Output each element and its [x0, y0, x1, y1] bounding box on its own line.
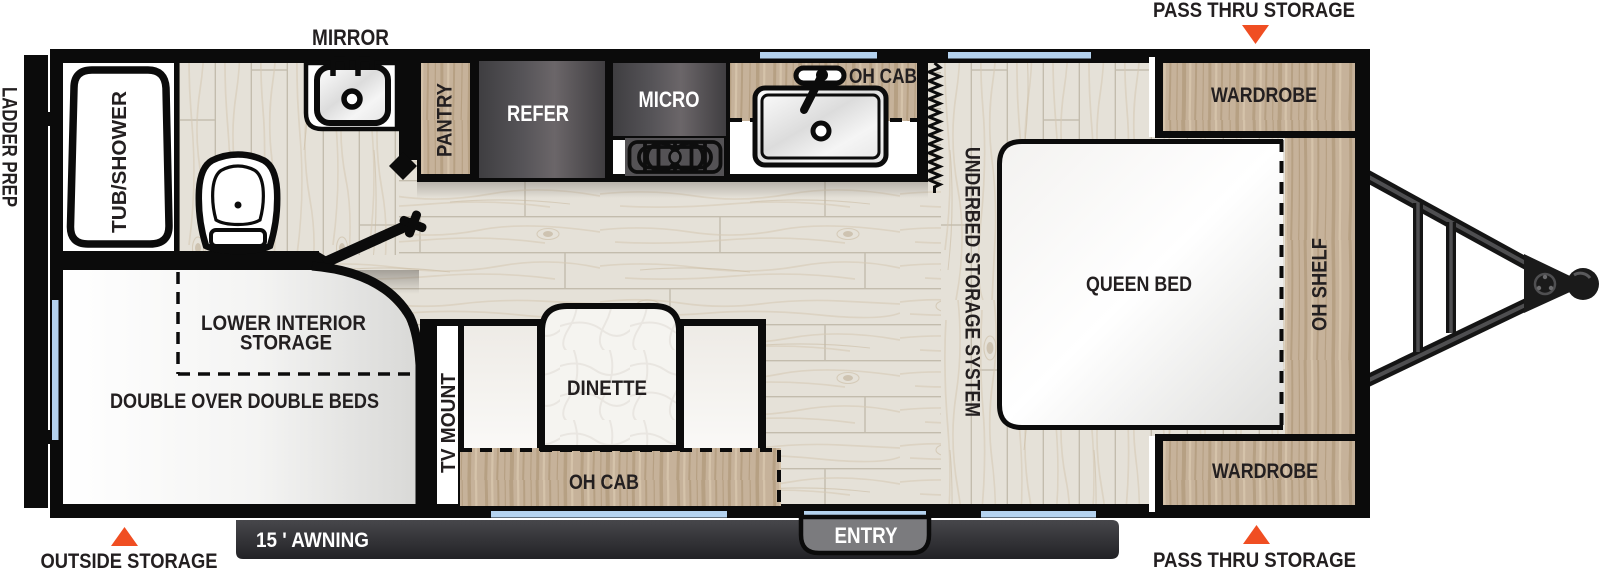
svg-text:REFER: REFER [507, 101, 569, 126]
svg-text:MICRO: MICRO [639, 87, 700, 112]
svg-text:WARDROBE: WARDROBE [1211, 84, 1317, 107]
svg-text:OUTSIDE STORAGE: OUTSIDE STORAGE [41, 550, 218, 571]
svg-text:PANTRY: PANTRY [434, 83, 457, 157]
svg-text:LADDER PREP: LADDER PREP [0, 87, 21, 207]
svg-text:QUEEN BED: QUEEN BED [1086, 273, 1192, 296]
svg-text:DINETTE: DINETTE [567, 377, 647, 400]
svg-text:TUB/SHOWER: TUB/SHOWER [109, 90, 131, 233]
svg-text:OH SHELF: OH SHELF [1309, 238, 1332, 331]
svg-text:PASS THRU STORAGE: PASS THRU STORAGE [1153, 549, 1356, 571]
svg-text:OH CAB: OH CAB [569, 471, 639, 494]
svg-text:PASS THRU STORAGE: PASS THRU STORAGE [1153, 0, 1355, 22]
svg-text:ENTRY: ENTRY [835, 523, 898, 548]
svg-text:UNDERBED STORAGE SYSTEM: UNDERBED STORAGE SYSTEM [961, 147, 984, 417]
svg-text:TV MOUNT: TV MOUNT [438, 373, 460, 473]
svg-text:OH CAB: OH CAB [849, 65, 917, 88]
svg-text:MIRROR: MIRROR [312, 25, 389, 50]
svg-text:STORAGE: STORAGE [240, 332, 332, 355]
svg-text:WARDROBE: WARDROBE [1212, 460, 1318, 483]
svg-text:DOUBLE OVER DOUBLE BEDS: DOUBLE OVER DOUBLE BEDS [110, 390, 379, 413]
svg-text:15 ' AWNING: 15 ' AWNING [256, 529, 369, 552]
